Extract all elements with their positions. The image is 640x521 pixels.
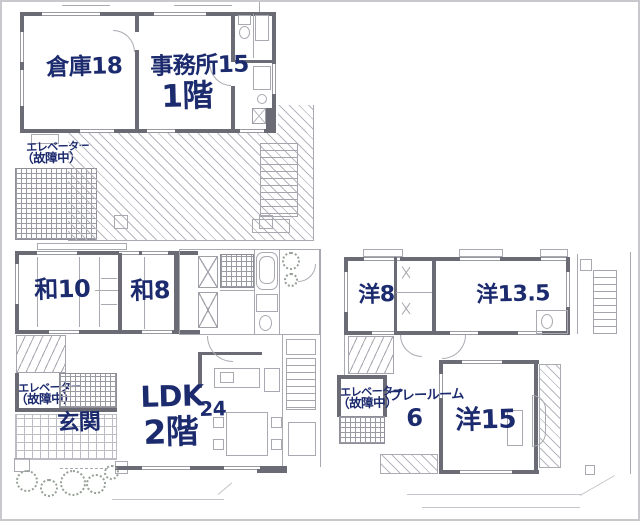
walkway-hatch <box>380 454 438 474</box>
window <box>37 251 77 255</box>
window <box>460 470 512 474</box>
dining-table <box>226 412 268 456</box>
bay-window <box>363 249 403 257</box>
dimension-tick <box>259 2 260 12</box>
floorplan-image: エレベーター （故障中） 倉庫18 事務所15 1階 <box>0 0 640 521</box>
window <box>119 251 139 255</box>
dimension-line <box>174 5 232 6</box>
entrance-label: 玄関 <box>57 412 101 435</box>
office-label: 事務所15 <box>150 53 249 79</box>
shaft-x-symbol <box>198 292 218 328</box>
boundary-line <box>630 252 631 474</box>
shaft-x-symbol <box>252 108 266 124</box>
bay-window <box>540 249 568 257</box>
window <box>142 251 168 255</box>
tile-grid <box>339 416 385 444</box>
hatched-driveway <box>278 105 314 133</box>
window <box>20 70 24 106</box>
west-room15-label: 洋15 <box>455 406 516 434</box>
wall <box>118 253 122 334</box>
staircase <box>286 358 316 410</box>
wall <box>231 86 235 133</box>
window <box>460 257 500 261</box>
tile-grid <box>59 373 117 408</box>
shelf-line <box>101 278 117 279</box>
window <box>566 272 570 307</box>
window <box>142 466 190 470</box>
toilet <box>239 26 250 39</box>
chair <box>213 439 224 450</box>
bathtub-inner <box>259 256 275 284</box>
toilet-tank <box>238 15 251 25</box>
japanese-room8-label: 和8 <box>130 278 170 303</box>
door-arc <box>113 30 135 52</box>
ac-unit <box>580 259 592 271</box>
door-arc <box>442 335 466 359</box>
bow-window <box>532 395 546 447</box>
wall <box>432 257 436 335</box>
door-opening <box>372 331 394 335</box>
tree-symbol <box>16 470 38 492</box>
shelf-line <box>101 304 117 305</box>
door-arc <box>207 336 233 362</box>
staircase <box>348 336 394 374</box>
tree-symbol <box>60 470 86 496</box>
window <box>462 360 502 364</box>
window <box>42 12 100 16</box>
dimension-line <box>422 507 580 508</box>
wall <box>257 469 287 473</box>
post <box>585 465 595 475</box>
dimension-line <box>112 499 224 500</box>
ldk-label: LDK <box>140 381 204 412</box>
west-room13-label: 洋13.5 <box>476 283 550 307</box>
bay-window <box>459 249 503 257</box>
post <box>259 215 273 229</box>
partition-line <box>253 14 254 58</box>
west-room8-label: 洋8 <box>358 284 395 307</box>
chair <box>271 439 282 450</box>
tree-symbol <box>86 474 106 494</box>
shaft-x-symbol <box>198 256 218 288</box>
door-opening <box>142 330 172 334</box>
boundary-line <box>313 105 314 241</box>
boundary-line <box>344 335 345 375</box>
floor2-label: 2階 <box>143 415 199 449</box>
dimension-line <box>62 5 110 6</box>
warehouse-label: 倉庫18 <box>46 55 123 80</box>
window <box>224 466 260 470</box>
fixture <box>257 94 267 104</box>
tree-symbol <box>40 479 58 497</box>
window <box>272 64 276 94</box>
boundary-line <box>577 254 578 334</box>
step-line <box>60 468 108 469</box>
kitchen-sink <box>220 372 234 383</box>
chair <box>271 417 282 428</box>
window <box>15 264 19 304</box>
window <box>344 272 348 312</box>
wall <box>337 375 387 379</box>
partition-line <box>282 335 283 466</box>
dimension-chamfer <box>218 483 232 495</box>
fixture <box>288 422 316 456</box>
partition-line <box>220 290 254 291</box>
washer <box>256 294 278 312</box>
door-arc <box>400 335 422 357</box>
wall <box>266 108 274 130</box>
door-opening <box>49 330 79 334</box>
floor1-label: 1階 <box>161 81 213 113</box>
window <box>541 257 567 261</box>
exterior-staircase <box>593 270 617 334</box>
wall <box>135 50 139 133</box>
toilet <box>259 315 272 331</box>
wall <box>15 330 200 334</box>
bath-tile-grid <box>220 254 254 288</box>
playroom-size-label: 6 <box>406 406 423 430</box>
dimension-line <box>407 494 582 495</box>
playroom-label: プレールーム <box>389 388 464 403</box>
closet-line <box>99 257 100 327</box>
washbasin <box>253 66 271 90</box>
window <box>154 12 206 16</box>
partition-line <box>254 249 255 335</box>
tree-symbol <box>284 273 298 287</box>
staircase <box>16 335 66 373</box>
tree-symbol <box>104 465 119 480</box>
post <box>114 215 128 229</box>
partition-line <box>396 292 432 293</box>
sink-unit <box>255 15 269 41</box>
japanese-room10-label: 和10 <box>34 277 91 302</box>
kitchen-island <box>264 368 280 392</box>
boundary-line <box>320 249 321 467</box>
dimension-chamfer <box>580 475 615 496</box>
closet-line <box>95 290 118 291</box>
ldk-size-label: 24 <box>199 398 226 419</box>
eaves-line <box>37 243 127 250</box>
partition-line <box>279 249 280 335</box>
staircase <box>260 143 298 217</box>
window <box>20 32 24 62</box>
toilet <box>541 314 553 329</box>
wall <box>135 12 139 32</box>
fixture <box>286 339 316 355</box>
boundary-line <box>68 240 314 241</box>
